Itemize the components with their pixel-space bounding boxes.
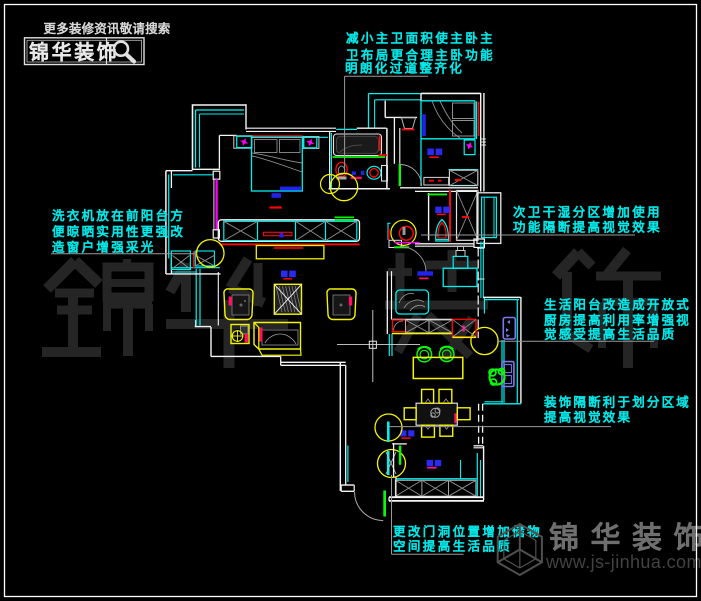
svg-text:洗衣机放在前阳台方: 洗衣机放在前阳台方: [52, 208, 185, 223]
svg-text:便晾晒实用性更强改: 便晾晒实用性更强改: [52, 224, 185, 239]
svg-text:更多装修资讯敬请搜索: 更多装修资讯敬请搜索: [44, 21, 171, 36]
svg-text:生活阳台改造成开放式: 生活阳台改造成开放式: [544, 297, 691, 312]
svg-text:装饰隔断利于划分区域: 装饰隔断利于划分区域: [544, 395, 691, 410]
svg-text:空间提高生活品质: 空间提高生活品质: [393, 539, 512, 554]
svg-text:锦华装饰: 锦华装饰: [29, 41, 119, 64]
svg-text:厨房提高利用率增强视: 厨房提高利用率增强视: [544, 313, 691, 328]
svg-text:提高视觉效果: 提高视觉效果: [544, 410, 632, 425]
svg-text:减小主卫面积使主卧主: 减小主卫面积使主卧主: [346, 31, 495, 46]
svg-text:造窗户增强采光: 造窗户增强采光: [52, 240, 156, 255]
svg-text:功能隔断提高视觉效果: 功能隔断提高视觉效果: [513, 220, 662, 235]
svg-text:卫布局更合理主卧功能: 卫布局更合理主卧功能: [346, 48, 495, 63]
svg-text:锦华装饰: 锦华装饰: [549, 522, 701, 555]
svg-text:觉感受提高生活品质: 觉感受提高生活品质: [544, 327, 676, 342]
svg-text:明朗化过道整齐化: 明朗化过道整齐化: [345, 61, 464, 76]
svg-text:次卫干湿分区增加使用: 次卫干湿分区增加使用: [513, 205, 662, 220]
svg-text:www.js-jinhua.com: www.js-jinhua.com: [545, 552, 701, 572]
